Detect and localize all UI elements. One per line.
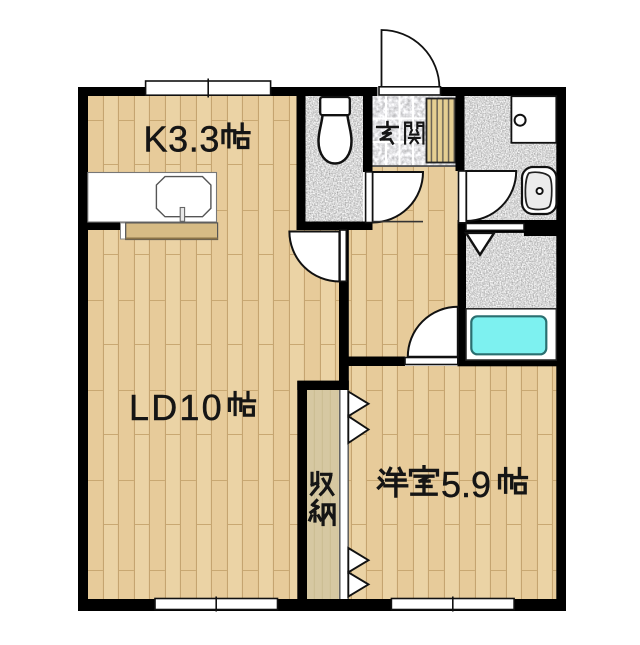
svg-text:LD10: LD10	[129, 387, 224, 428]
svg-text:K3.3: K3.3	[144, 119, 220, 160]
svg-text:5.9: 5.9	[441, 464, 491, 505]
